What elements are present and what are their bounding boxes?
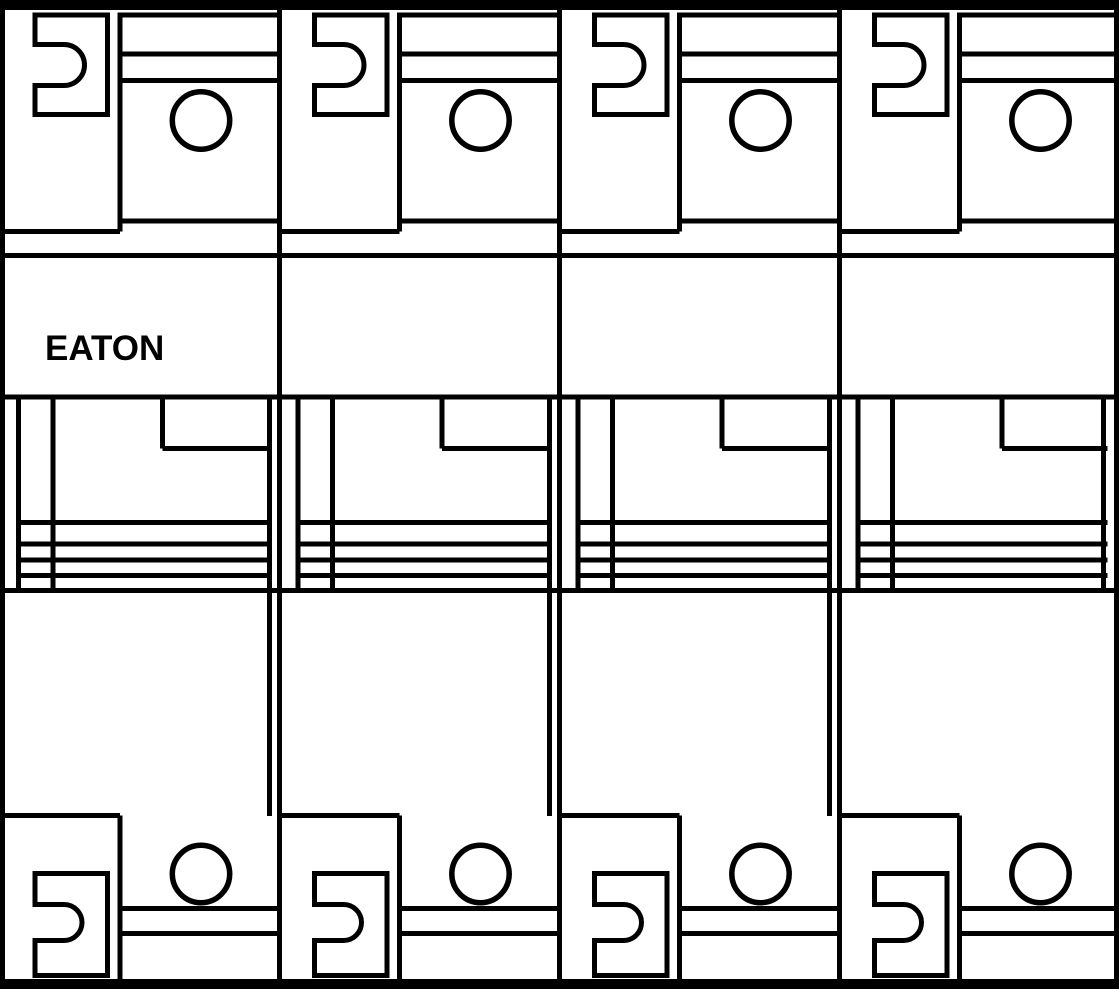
brand-label: EATON [45,329,164,368]
din-rail-bar-top [0,0,1119,10]
breaker-diagram: EATON [0,0,1119,989]
pole-1 [0,13,280,983]
breaker-diagram-stage: EATON [0,0,1119,989]
pole-4 [840,13,1119,983]
pole-3 [560,13,840,983]
pole-2 [280,13,560,983]
